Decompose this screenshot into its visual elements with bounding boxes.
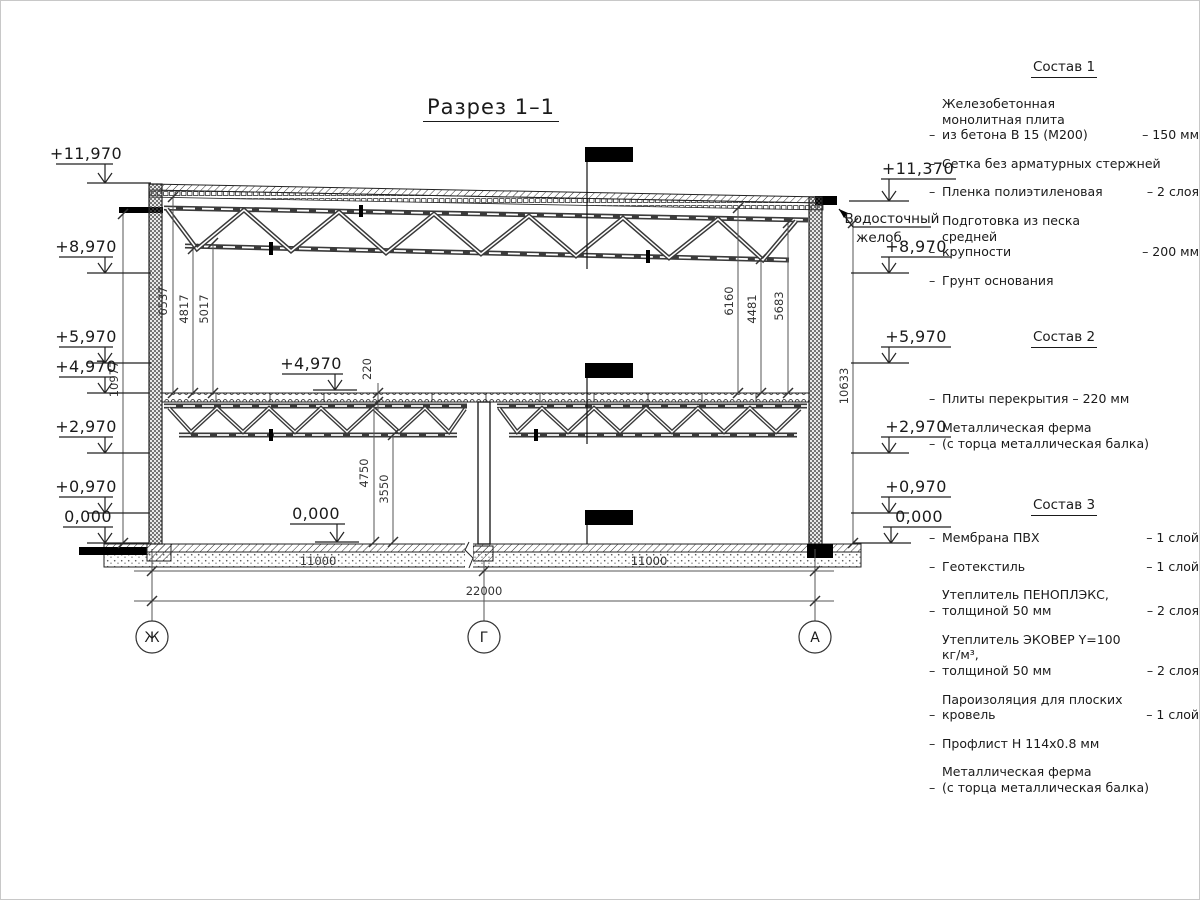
list-item: –Плиты перекрытия – 220 мм [929,391,1199,407]
list-item: –Сетка без арматурных стержней [929,156,1199,172]
list-item: –Утеплитель ПЕНОПЛЭКС, толщиной 50 мм– 2… [929,587,1199,618]
level-left-8970: +8,970 [55,237,117,256]
center-column [478,402,490,544]
level-left-11970: +11,970 [50,144,122,163]
level-left-2970: +2,970 [55,417,117,436]
dim-3550: 3550 [377,474,391,503]
left-ground-bar [79,547,147,555]
dim-22000: 22000 [466,584,503,598]
dim-6160: 6160 [722,286,736,315]
floor-truss-right [497,406,807,441]
level-left-5970: +5,970 [55,327,117,346]
roof-truss [164,205,808,263]
axis-zh: Ж [144,630,159,646]
level-left-0970: +0,970 [55,477,117,496]
list-item: –Утеплитель ЭКОВЕР Y=100 кг/м³, толщиной… [929,632,1199,679]
list-item: –Мембрана ПВХ– 1 слой [929,530,1199,546]
gutter-label-line2: желоб [856,230,902,246]
left-wall [149,184,162,544]
dim-5683: 5683 [772,291,786,320]
flag-box-bottom [585,510,633,525]
flag-box-middle [585,363,633,378]
sostav3-heading: Состав 3 [929,497,1199,514]
level-left-4970: +4,970 [55,357,117,376]
level-inner-0000: 0,000 [292,504,340,523]
ground-slab [79,542,861,568]
dim-220: 220 [360,358,374,380]
composition-panel: Состав 1 –Железобетонная монолитная плит… [929,59,1199,809]
dim-11000-right: 11000 [631,554,668,568]
level-inner-4970: +4,970 [280,354,342,373]
list-item: –Геотекстиль– 1 слой [929,559,1199,575]
sostav2-heading: Состав 2 [929,329,1199,346]
dim-4817: 4817 [177,294,191,323]
list-item: –Металлическая ферма (с торца металличес… [929,420,1199,451]
floor-truss-left [164,406,467,441]
dim-4750: 4750 [357,458,371,487]
dim-10633: 10633 [837,368,851,405]
blueprint-canvas: Разрез 1–1 [0,0,1200,900]
list-item: –Профлист Н 114х0.8 мм [929,736,1199,752]
axis-g: Г [480,630,489,646]
axis-bubbles: Ж Г А [136,621,831,653]
center-footing [473,546,493,561]
dim-5017: 5017 [197,294,211,323]
list-item: –Железобетонная монолитная плита из бето… [929,96,1199,143]
right-footing [807,544,833,558]
intermediate-floor [162,393,809,402]
dim-6537: 6537 [156,286,170,315]
list-item: –Грунт основания [929,273,1199,289]
right-wall [809,197,822,544]
axis-a: А [810,630,820,646]
list-item: –Подготовка из песка средней крупности– … [929,213,1199,260]
walls [149,184,822,544]
list-item: –Пароизоляция для плоских кровель– 1 сло… [929,692,1199,723]
list-item: –Металлическая ферма (с торца металличес… [929,764,1199,795]
dim-4481: 4481 [745,294,759,323]
left-footing [147,544,171,561]
list-item: –Пленка полиэтиленовая– 2 слоя [929,184,1199,200]
level-left-0000: 0,000 [64,507,112,526]
sostav1-heading: Состав 1 [929,59,1199,76]
gutter-label-line1: Водосточный [845,211,940,227]
dim-11000-left: 11000 [300,554,337,568]
flag-box-top [585,147,633,162]
